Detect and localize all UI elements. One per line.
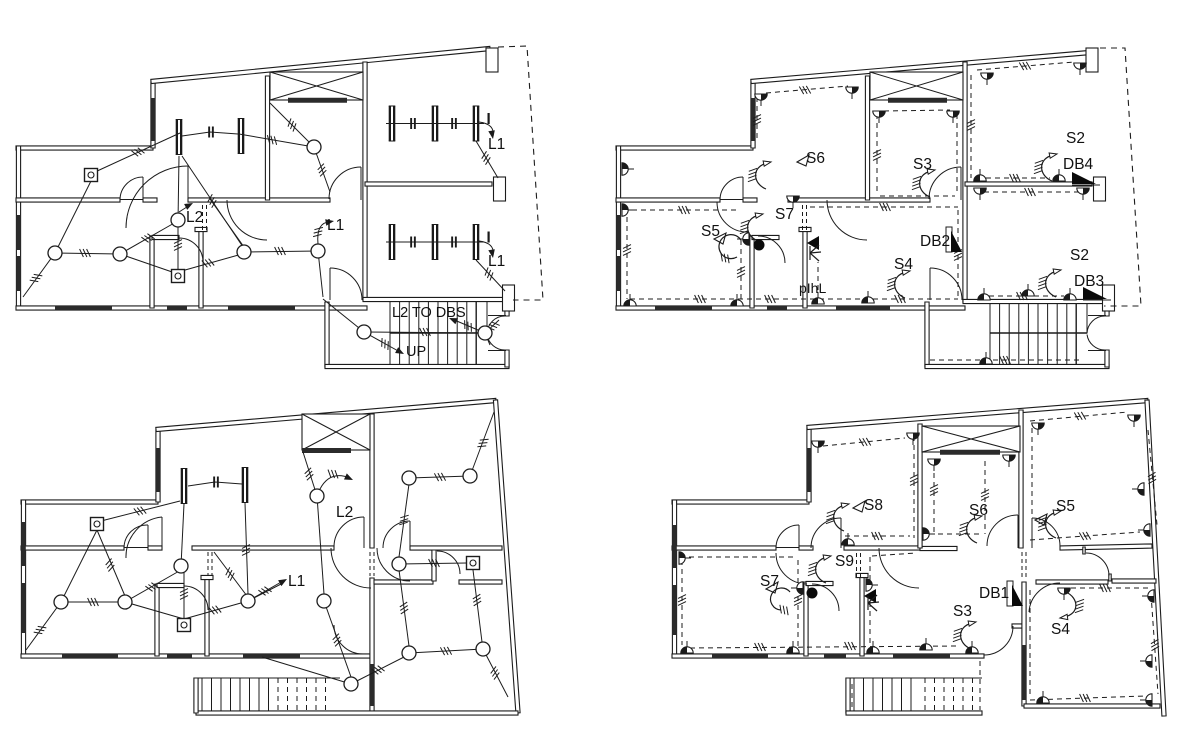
svg-text:DB2: DB2 (920, 233, 950, 250)
svg-text:L2: L2 (186, 209, 203, 226)
svg-text:DB3: DB3 (1074, 273, 1104, 290)
svg-text:S8: S8 (864, 497, 883, 514)
svg-text:L2: L2 (336, 504, 353, 521)
svg-text:S2: S2 (1070, 247, 1089, 264)
svg-text:S3: S3 (913, 156, 932, 173)
svg-text:DB1: DB1 (979, 585, 1009, 602)
svg-text:S9: S9 (835, 553, 854, 570)
svg-text:S7: S7 (775, 206, 794, 223)
svg-text:L1: L1 (327, 217, 344, 234)
svg-text:S5: S5 (1056, 498, 1075, 515)
svg-text:UP: UP (406, 344, 426, 360)
svg-text:L2 TO DBS: L2 TO DBS (392, 305, 466, 321)
svg-text:S5: S5 (701, 223, 720, 240)
svg-text:S3: S3 (953, 603, 972, 620)
svg-text:S4: S4 (894, 256, 913, 273)
svg-text:S6: S6 (806, 150, 825, 167)
svg-text:S2: S2 (1066, 130, 1085, 147)
svg-text:S7: S7 (760, 573, 779, 590)
svg-text:S4: S4 (1051, 621, 1070, 638)
svg-text:L1: L1 (488, 253, 505, 270)
svg-text:L1: L1 (488, 136, 505, 153)
svg-text:L1: L1 (288, 573, 305, 590)
svg-text:S6: S6 (969, 502, 988, 519)
svg-text:DB4: DB4 (1063, 156, 1094, 173)
svg-text:pIhL: pIhL (799, 280, 826, 296)
